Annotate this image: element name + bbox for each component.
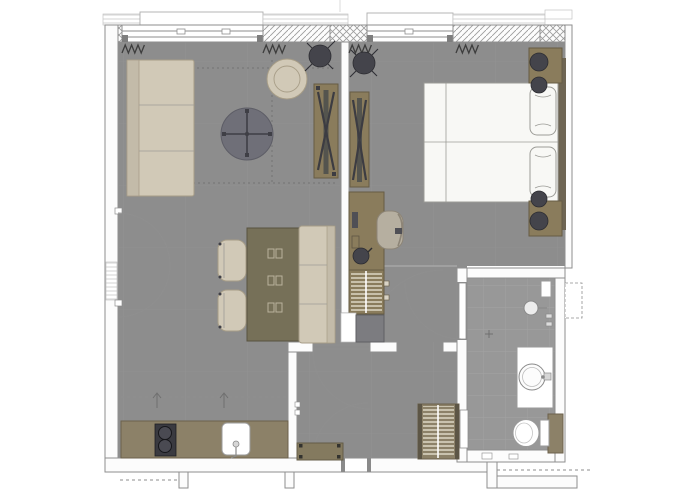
faucet bbox=[233, 441, 239, 447]
closet-niche bbox=[341, 313, 356, 342]
concrete-wall-segment bbox=[453, 25, 540, 42]
window-jamb bbox=[367, 35, 373, 42]
window-jamb bbox=[257, 35, 263, 42]
basin-faucet bbox=[544, 373, 551, 380]
sofa-backrest bbox=[127, 60, 139, 196]
concrete-wall-segment bbox=[263, 25, 330, 42]
window-jamb bbox=[447, 35, 453, 42]
kitchen-counter bbox=[121, 421, 288, 458]
bench-backrest bbox=[327, 226, 335, 343]
pillow bbox=[530, 147, 556, 197]
shower-valve bbox=[546, 314, 552, 318]
pendant-light-icon bbox=[305, 41, 335, 71]
wardrobe-knob bbox=[384, 295, 389, 300]
door-panel bbox=[460, 410, 468, 448]
burner bbox=[159, 427, 172, 440]
shower-panel bbox=[541, 281, 551, 297]
exterior-ledge bbox=[103, 14, 140, 25]
bathroom-top-wall bbox=[457, 268, 565, 278]
left-exterior-wall bbox=[105, 25, 118, 472]
burner bbox=[159, 440, 172, 453]
armchair bbox=[267, 59, 307, 99]
window-mullion bbox=[222, 29, 230, 34]
shower-head bbox=[524, 301, 538, 315]
entry-door-opening bbox=[344, 459, 368, 471]
window-sill bbox=[140, 12, 263, 25]
dining-chair bbox=[218, 290, 246, 331]
table-lamp bbox=[531, 191, 547, 207]
desk-accessory bbox=[352, 212, 358, 228]
hall-north-wall bbox=[370, 342, 397, 352]
door-jamb bbox=[367, 458, 371, 472]
kettle bbox=[353, 248, 369, 264]
table-lamp bbox=[530, 212, 548, 230]
exterior-ledge bbox=[545, 10, 572, 19]
bottom-right-offset-wall bbox=[497, 476, 577, 488]
switch-mark bbox=[295, 402, 300, 407]
toilet-cistern bbox=[540, 420, 549, 446]
floor-plan-drawing bbox=[0, 0, 700, 500]
luggage-bench bbox=[356, 315, 384, 342]
door-hinge-mark bbox=[115, 300, 122, 306]
pendant-light-icon bbox=[350, 49, 378, 77]
bathroom-door-leaf bbox=[459, 283, 466, 339]
exterior-pier bbox=[285, 472, 294, 488]
exterior-ledge bbox=[263, 14, 348, 25]
masonry-wall-segment bbox=[540, 25, 568, 42]
table-lamp bbox=[531, 77, 547, 93]
floor-plan-page: { "document": { "type": "architectural-f… bbox=[0, 0, 700, 500]
desk-lamp bbox=[395, 228, 402, 234]
toilet-brush bbox=[509, 454, 518, 459]
masonry-wall-segment bbox=[330, 25, 367, 42]
towel-shelf bbox=[548, 414, 563, 453]
wardrobe-side-panel bbox=[455, 404, 459, 459]
bath-accessory bbox=[482, 453, 492, 459]
top-exterior-wall bbox=[103, 10, 572, 42]
corridor-floor bbox=[384, 266, 467, 342]
left-wall-door-panel bbox=[106, 262, 117, 300]
window-mullion bbox=[177, 29, 185, 34]
wardrobe-knob bbox=[384, 281, 389, 286]
exterior-ledge bbox=[453, 14, 545, 25]
window-jamb bbox=[122, 35, 128, 42]
switch-mark bbox=[295, 410, 300, 415]
shower-valve bbox=[546, 322, 552, 326]
service-shaft bbox=[565, 283, 582, 318]
media-partition-wall bbox=[341, 42, 349, 313]
right-exterior-wall bbox=[565, 25, 572, 268]
dining-chair bbox=[218, 240, 246, 281]
table-lamp bbox=[530, 53, 548, 71]
window-sill bbox=[367, 13, 453, 26]
entry-bench bbox=[297, 443, 343, 460]
window bbox=[122, 25, 263, 42]
wardrobe-side-panel bbox=[418, 404, 422, 459]
exterior-pier bbox=[179, 472, 188, 488]
window-mullion bbox=[405, 29, 413, 34]
pillow bbox=[530, 87, 556, 135]
